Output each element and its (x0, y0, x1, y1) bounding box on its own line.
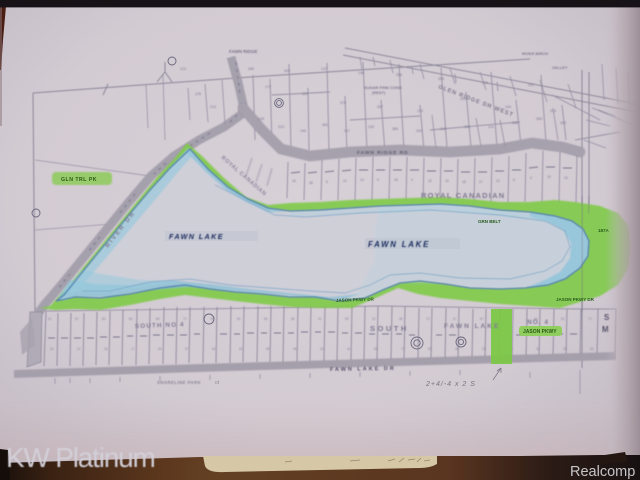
svg-text:Realcomp: Realcomp (570, 464, 635, 480)
svg-text:KW Platinum: KW Platinum (6, 442, 155, 473)
